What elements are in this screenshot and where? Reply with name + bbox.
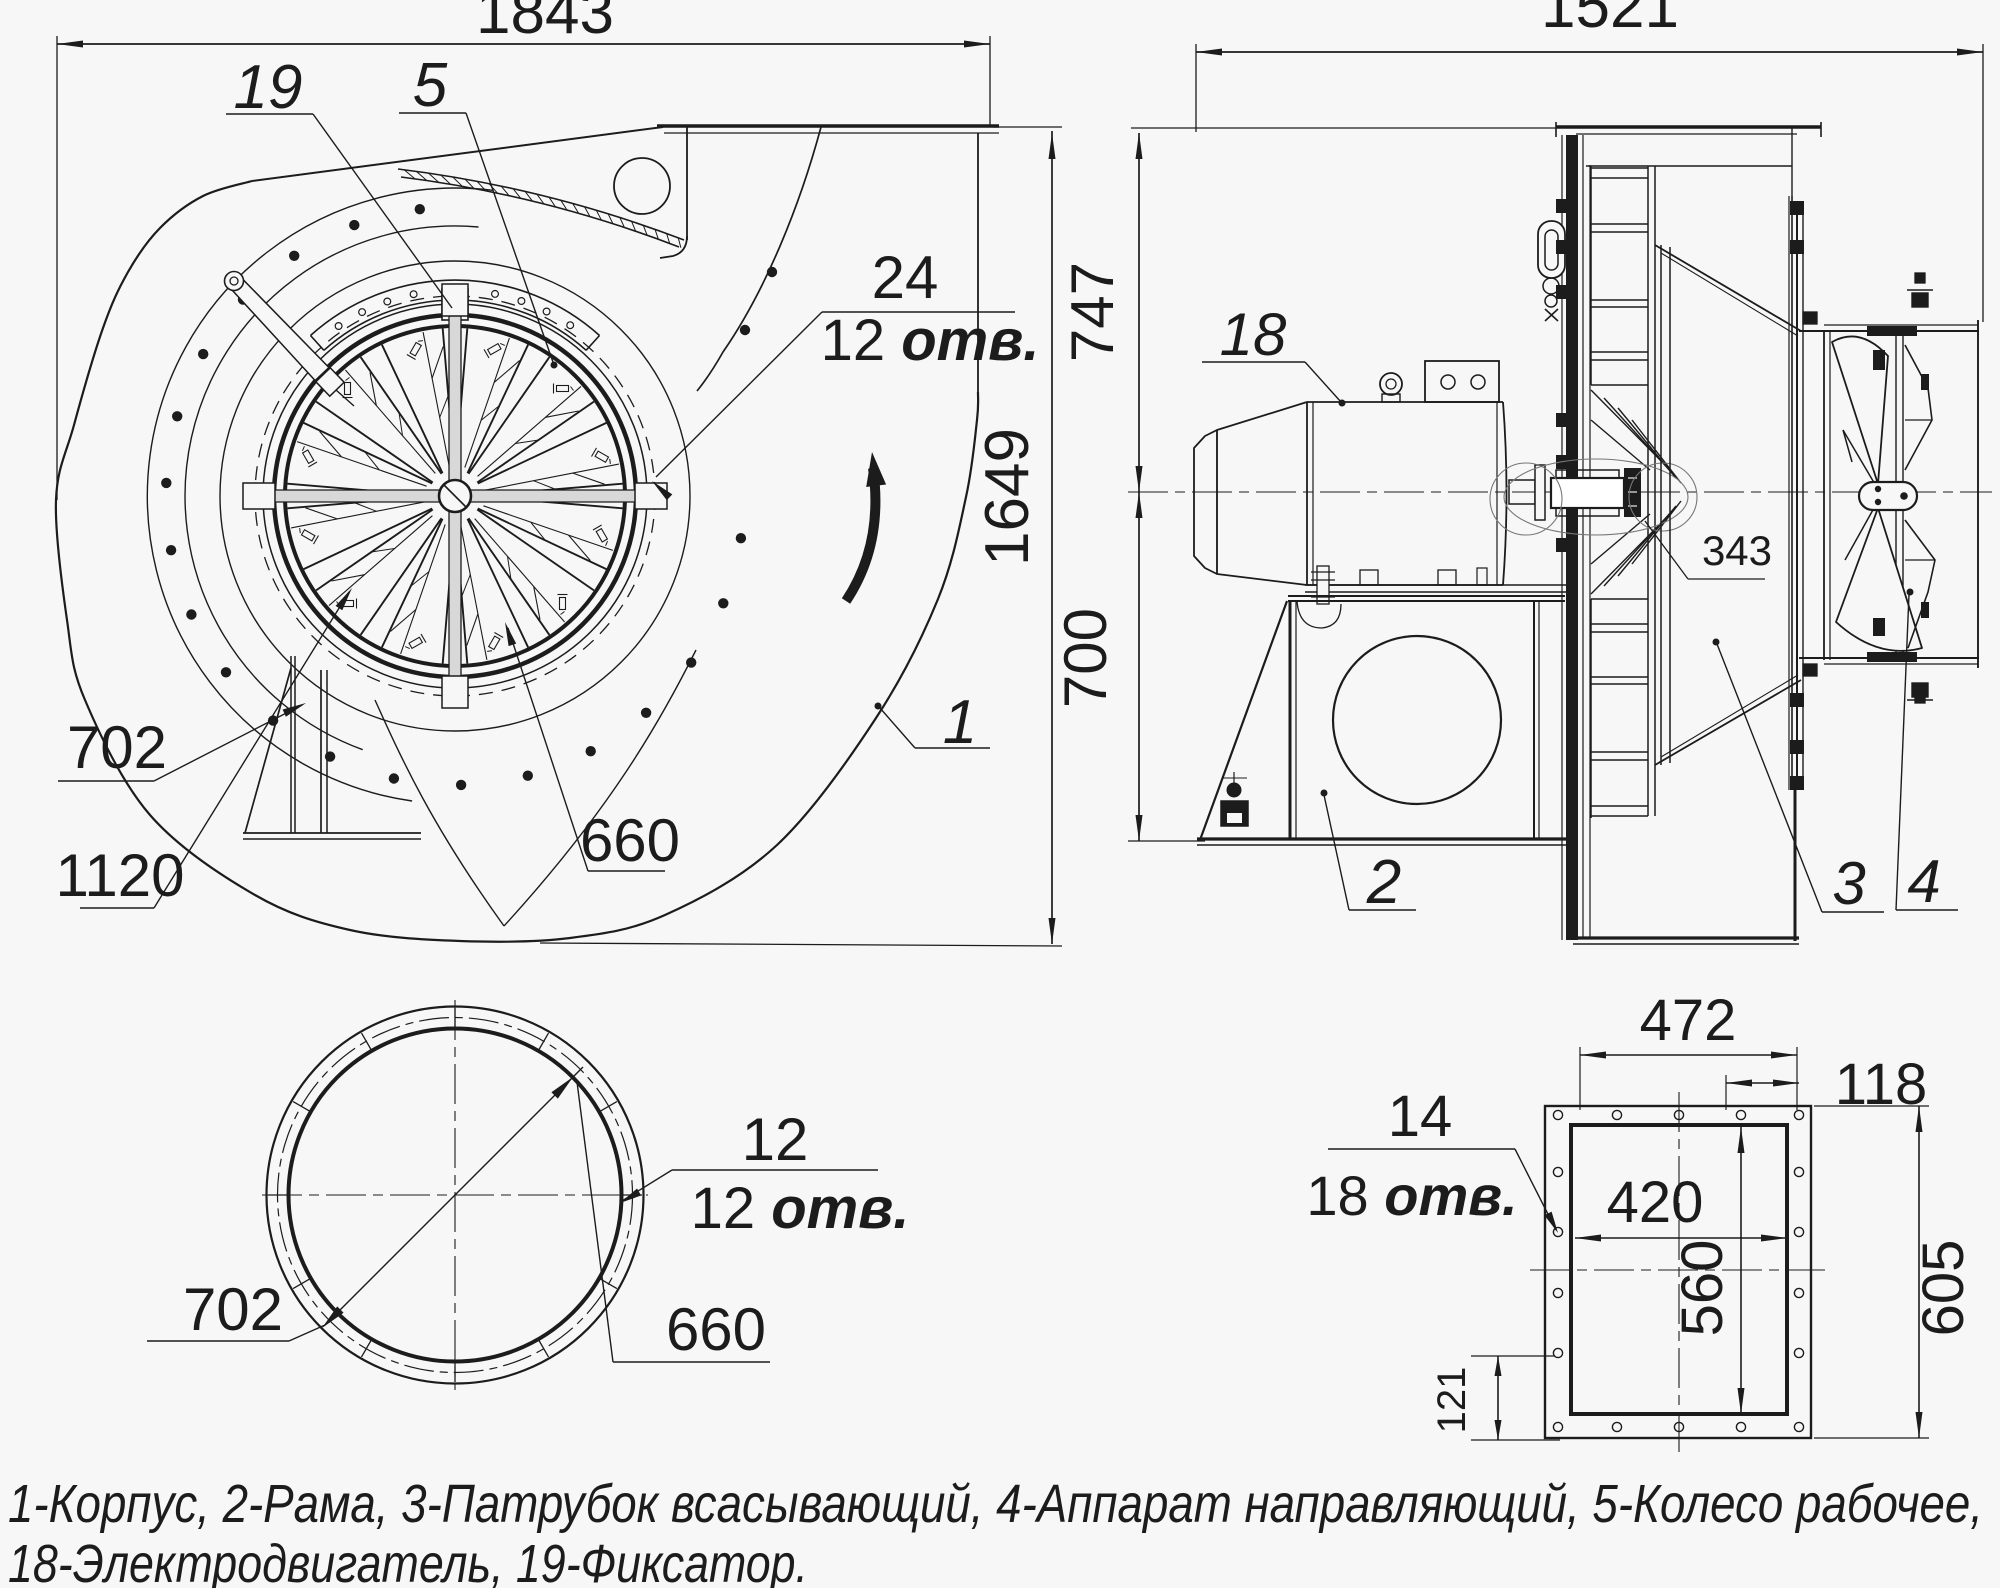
svg-text:747: 747 [1059, 262, 1126, 362]
svg-text:660: 660 [666, 1296, 766, 1363]
svg-text:700: 700 [1052, 608, 1119, 708]
svg-text:1649: 1649 [973, 428, 1042, 566]
svg-text:1843: 1843 [476, 0, 614, 47]
svg-text:18: 18 [1220, 301, 1287, 368]
svg-text:1521: 1521 [1541, 0, 1679, 41]
svg-text:18-Электродвигатель, 19-Фиксат: 18-Электродвигатель, 19-Фиксатор. [8, 1534, 808, 1588]
svg-text:702: 702 [183, 1276, 283, 1343]
svg-text:12 отв.: 12 отв. [821, 308, 1040, 373]
svg-text:19: 19 [234, 53, 303, 122]
svg-text:14: 14 [1388, 1084, 1453, 1149]
svg-text:4: 4 [1907, 848, 1940, 915]
svg-text:702: 702 [67, 714, 167, 781]
svg-text:1120: 1120 [55, 842, 184, 909]
svg-text:1: 1 [943, 688, 977, 757]
svg-text:18 отв.: 18 отв. [1306, 1164, 1517, 1227]
svg-text:5: 5 [413, 51, 448, 120]
svg-text:343: 343 [1702, 527, 1772, 574]
svg-text:472: 472 [1640, 988, 1737, 1053]
svg-text:121: 121 [1430, 1367, 1474, 1434]
svg-text:12 отв.: 12 отв. [691, 1176, 910, 1241]
svg-text:118: 118 [1835, 1052, 1927, 1117]
svg-text:12: 12 [742, 1106, 809, 1173]
svg-text:3: 3 [1832, 850, 1865, 917]
svg-text:605: 605 [1911, 1240, 1976, 1337]
svg-text:420: 420 [1607, 1170, 1704, 1235]
svg-text:2: 2 [1366, 848, 1401, 917]
svg-text:24: 24 [872, 244, 939, 311]
svg-text:560: 560 [1670, 1240, 1735, 1337]
svg-text:660: 660 [580, 807, 680, 874]
svg-text:1-Корпус, 2-Рама, 3-Патрубок в: 1-Корпус, 2-Рама, 3-Патрубок всасывающий… [8, 1474, 1983, 1534]
